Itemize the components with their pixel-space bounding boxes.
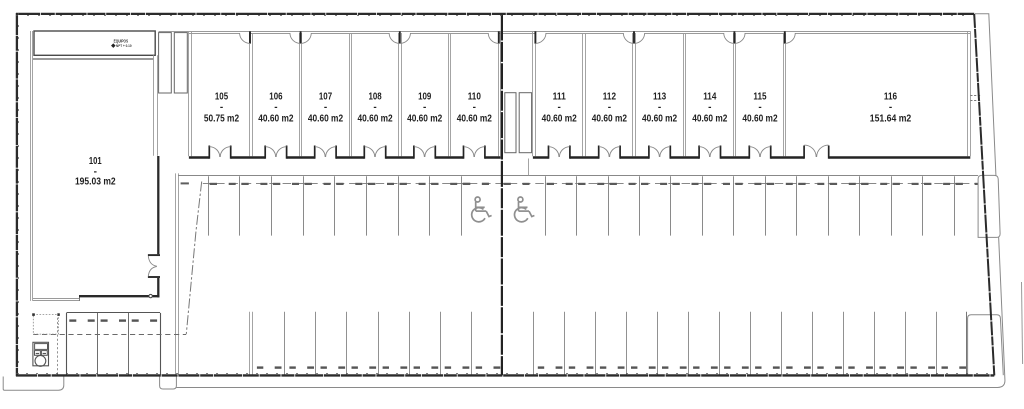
svg-text:40.60 m2: 40.60 m2 (642, 114, 678, 125)
svg-text:106: 106 (269, 92, 283, 103)
svg-text:NPT + 0.10: NPT + 0.10 (116, 43, 132, 48)
svg-text:40.60 m2: 40.60 m2 (258, 114, 294, 125)
svg-text:114: 114 (703, 92, 717, 103)
svg-text:-: - (889, 102, 892, 113)
svg-text:195.03 m2: 195.03 m2 (75, 177, 116, 188)
svg-text:113: 113 (653, 92, 667, 103)
svg-text:40.60 m2: 40.60 m2 (592, 114, 628, 125)
svg-text:-: - (94, 166, 97, 177)
svg-text:-: - (708, 102, 711, 113)
svg-text:40.60 m2: 40.60 m2 (692, 114, 728, 125)
svg-text:40.60 m2: 40.60 m2 (358, 114, 394, 125)
svg-text:151.64 m2: 151.64 m2 (870, 114, 912, 125)
svg-text:-: - (274, 102, 277, 113)
svg-text:105: 105 (215, 92, 229, 103)
svg-text:40.60 m2: 40.60 m2 (742, 114, 778, 125)
svg-text:-: - (558, 102, 561, 113)
svg-text:40.60 m2: 40.60 m2 (407, 114, 443, 125)
svg-text:40.60 m2: 40.60 m2 (457, 114, 493, 125)
svg-text:116: 116 (884, 92, 898, 103)
svg-text:115: 115 (753, 92, 767, 103)
svg-text:-: - (758, 102, 761, 113)
svg-text:110: 110 (468, 92, 482, 103)
svg-text:40.60 m2: 40.60 m2 (308, 114, 344, 125)
svg-text:108: 108 (369, 92, 383, 103)
svg-text:40.60 m2: 40.60 m2 (542, 114, 578, 125)
svg-text:-: - (423, 102, 426, 113)
svg-text:-: - (324, 102, 327, 113)
svg-text:107: 107 (319, 92, 333, 103)
svg-text:101: 101 (89, 156, 102, 167)
svg-text:-: - (373, 102, 376, 113)
svg-text:111: 111 (553, 92, 567, 103)
svg-text:-: - (608, 102, 611, 113)
svg-text:112: 112 (603, 92, 617, 103)
svg-text:-: - (658, 102, 661, 113)
svg-text:-: - (220, 102, 223, 113)
svg-text:-: - (473, 102, 476, 113)
svg-text:109: 109 (418, 92, 432, 103)
svg-text:50.75 m2: 50.75 m2 (204, 114, 240, 125)
